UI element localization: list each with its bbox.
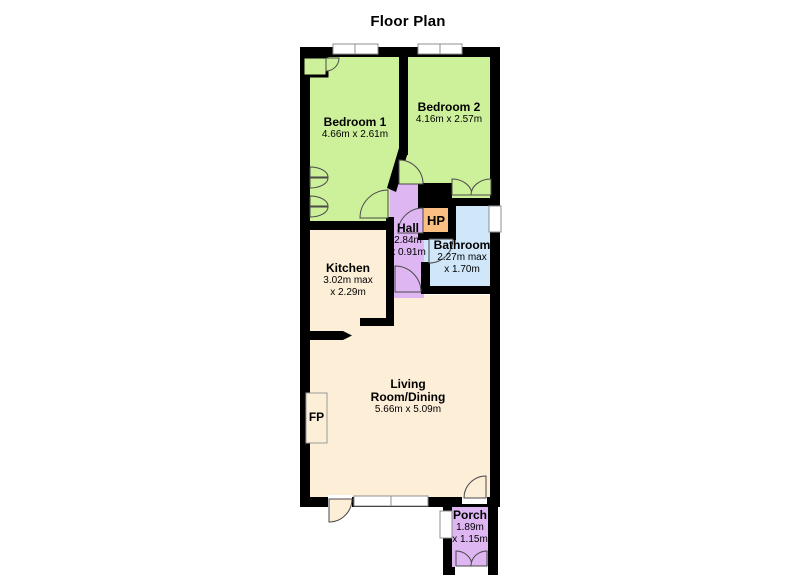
wall-bathroom-bottom bbox=[421, 286, 500, 294]
living-exterior-door-arc bbox=[329, 499, 352, 522]
porch-window bbox=[440, 511, 452, 538]
fireplace-box bbox=[306, 393, 327, 443]
wall-porch-right bbox=[488, 499, 498, 575]
floor-plan-page: Floor Plan bbox=[0, 0, 800, 582]
wall-kitchen-stub bbox=[305, 331, 343, 340]
wall-bedroom-divider bbox=[399, 47, 408, 155]
living-room-floor bbox=[305, 295, 495, 502]
side-window bbox=[489, 206, 501, 232]
wall-bedroom1-bottom bbox=[305, 221, 390, 230]
porch-entrance-gap bbox=[455, 566, 488, 576]
bedroom1-alcove bbox=[303, 57, 327, 76]
wall-hall-west bbox=[386, 221, 394, 326]
wall-right bbox=[490, 47, 500, 507]
floor-plan-drawing bbox=[0, 0, 800, 582]
wall-kitchen-southeast bbox=[360, 318, 394, 326]
wall-hall-bedroom2-mass bbox=[418, 183, 452, 208]
